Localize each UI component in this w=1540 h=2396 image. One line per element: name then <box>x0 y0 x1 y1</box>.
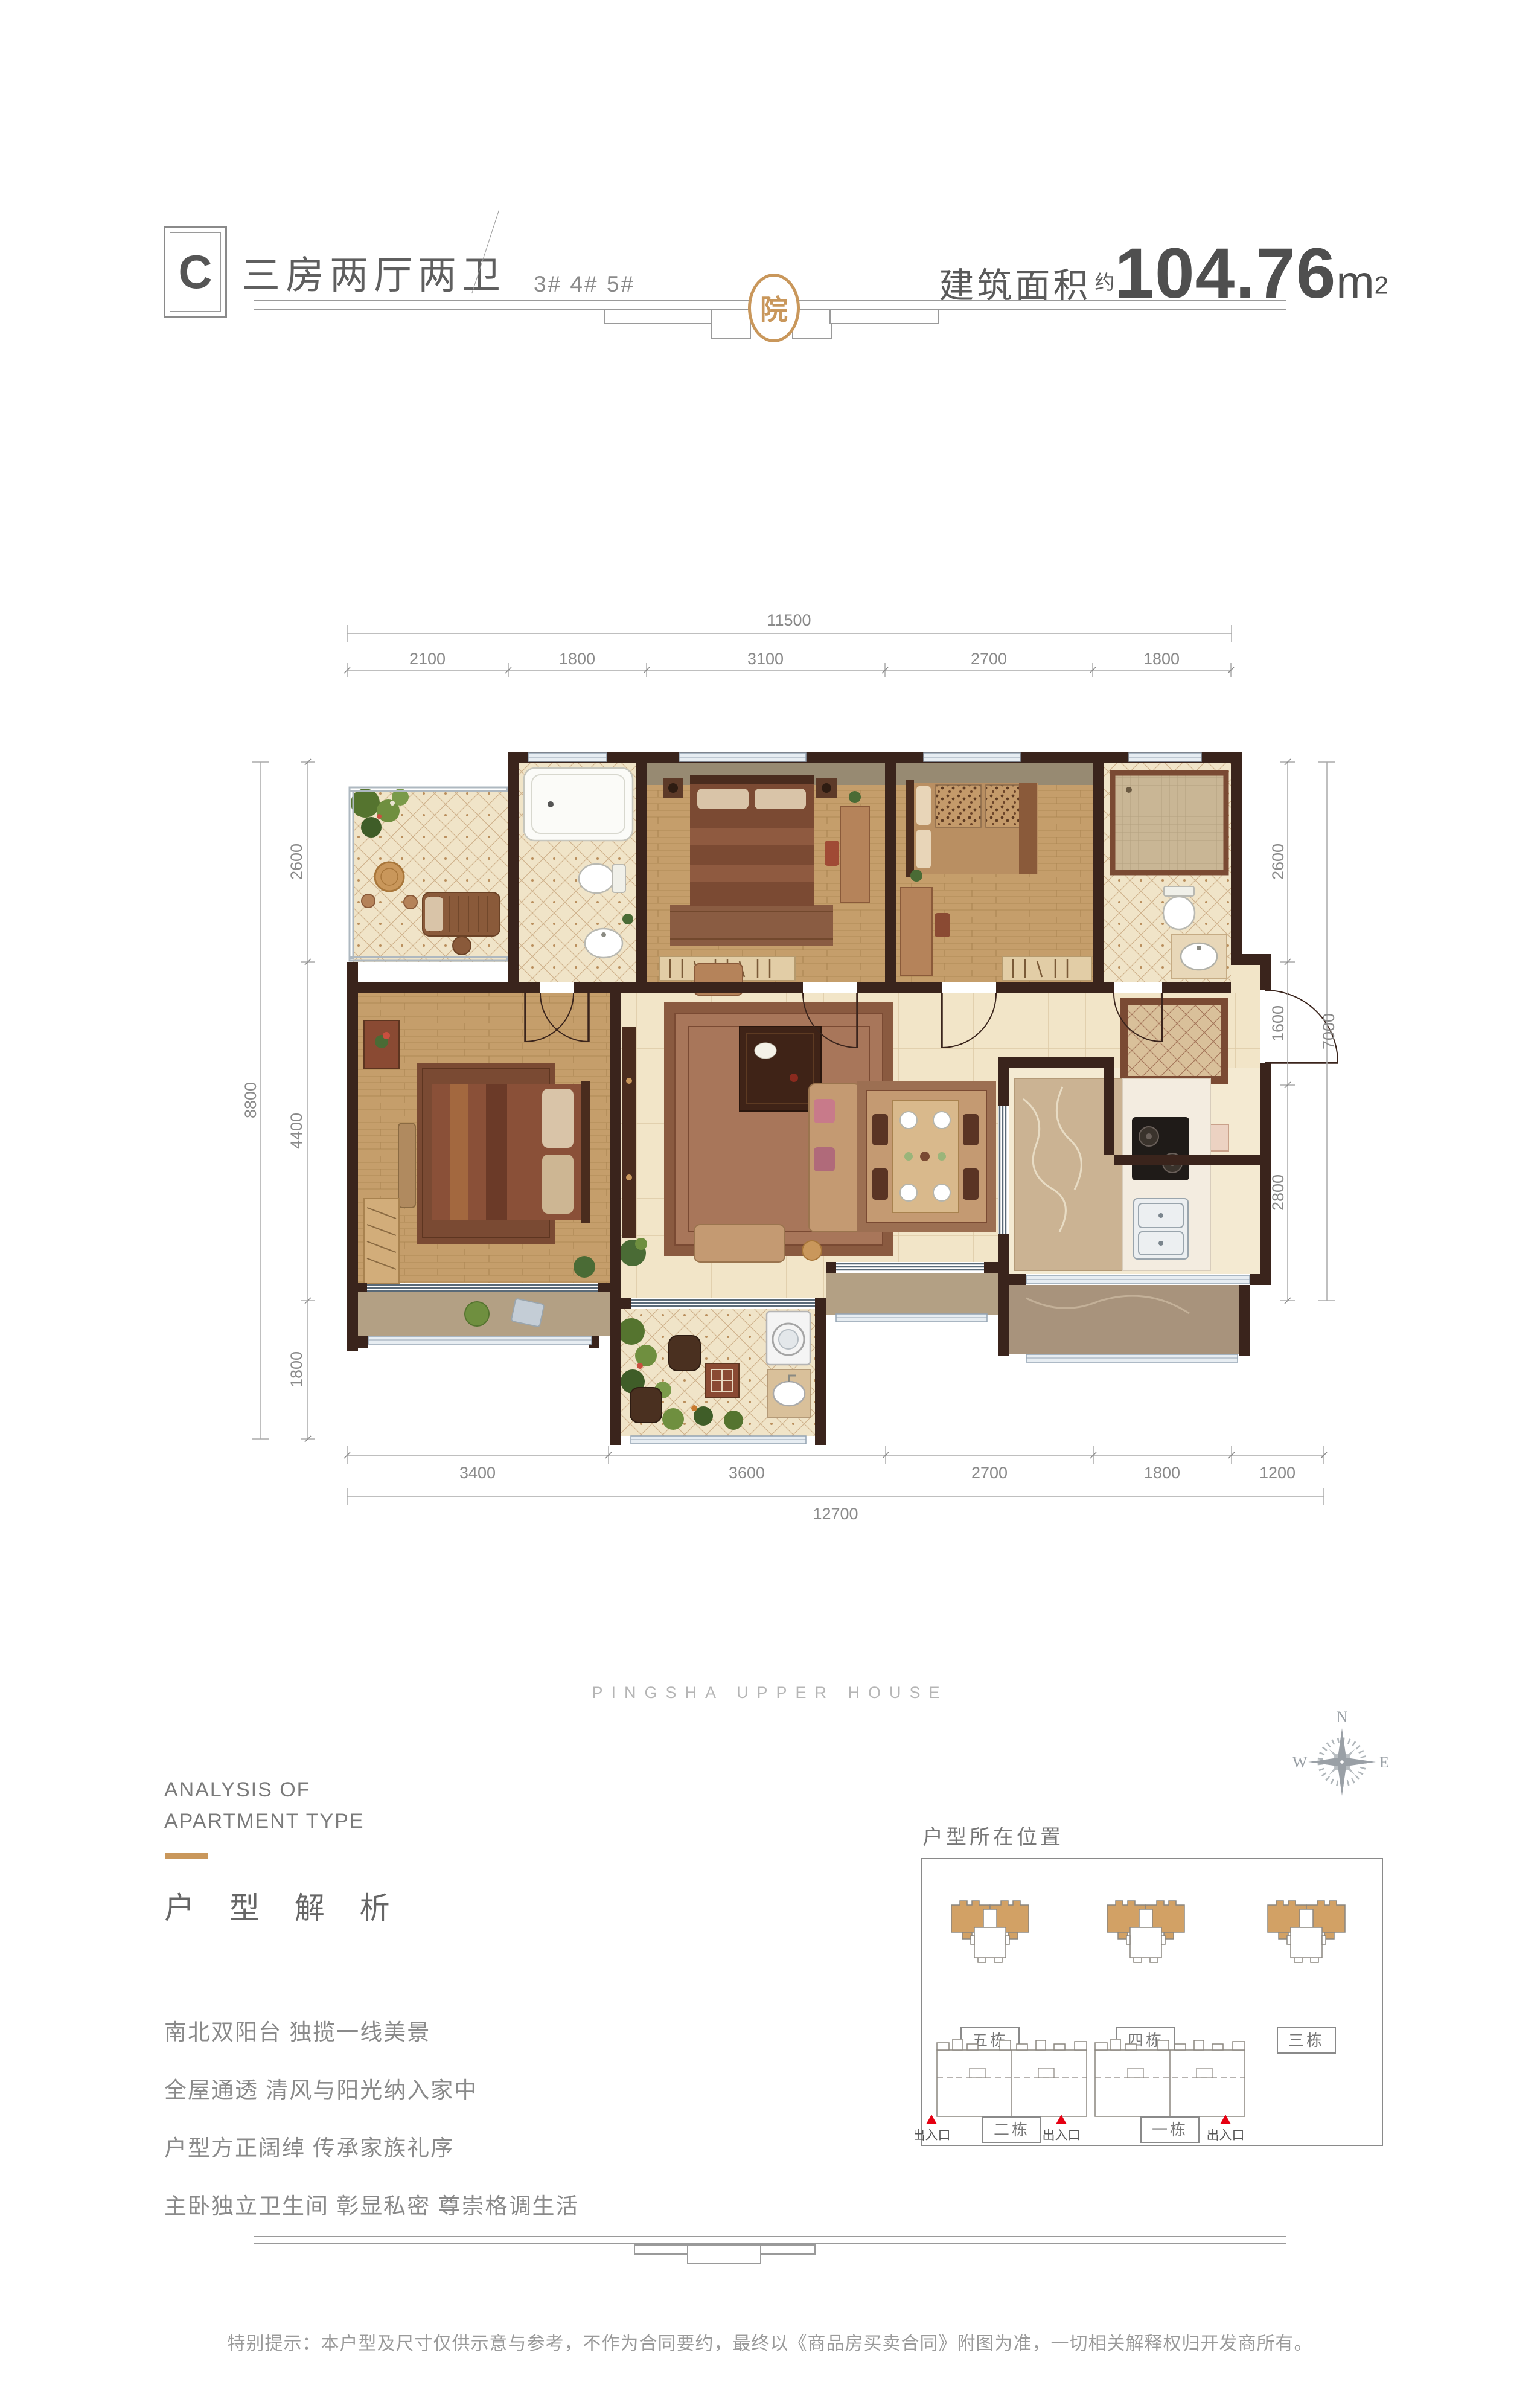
dim-right-seg: 1600 <box>1269 1005 1287 1042</box>
gold-accent-bar <box>165 1853 208 1859</box>
building-numbers: 3# 4# 5# <box>534 272 635 297</box>
analysis-chinese-title: 户 型 解 析 <box>164 1884 403 1927</box>
area-value: 104.76 <box>1114 234 1336 313</box>
dim-bottom-seg: 2700 <box>971 1464 1008 1482</box>
floor-plan-drawing: 11500 2100 1800 3100 2700 1800 3400 3600… <box>229 598 1364 1531</box>
dim-top-seg: 2700 <box>971 650 1007 668</box>
location-map-title: 户型所在位置 <box>922 1826 1064 1849</box>
divider-step <box>829 309 939 324</box>
brand-seal-icon: 院 <box>748 274 800 342</box>
type-code: C <box>170 232 221 312</box>
dining-room-furniture <box>857 1081 996 1232</box>
entrance-label: 出入口 <box>915 2129 951 2142</box>
dim-bottom-seg: 3600 <box>729 1464 765 1482</box>
dim-top-seg: 3100 <box>747 650 784 668</box>
divider-step <box>759 2244 816 2255</box>
dim-bottom-total: 12700 <box>813 1505 858 1523</box>
disclaimer-text: 特别提示：本户型及尺寸仅供示意与参考，不作为合同要约，最终以《商品房买卖合同》附… <box>0 2328 1540 2355</box>
building-label: 三栋 <box>1288 2031 1324 2049</box>
dim-right-seg: 2800 <box>1269 1174 1287 1211</box>
analysis-english-title: ANALYSIS OF APARTMENT TYPE <box>164 1774 365 1837</box>
location-map: 户型所在位置 五栋 四栋 三栋 二栋 一栋 出 <box>915 1818 1398 2162</box>
dim-left-seg: 2600 <box>287 844 305 880</box>
area-unit: m <box>1336 257 1374 308</box>
dim-bottom-seg: 1800 <box>1144 1464 1180 1482</box>
type-name: 三房两厅两卫 <box>241 245 506 300</box>
area-info: 建筑面积约104.76m2 <box>930 232 1388 315</box>
selling-point: 主卧独立卫生间 彰显私密 尊崇格调生活 <box>164 2177 580 2235</box>
dim-bottom-seg: 1200 <box>1259 1464 1296 1482</box>
divider-step <box>687 2244 761 2264</box>
dim-left-seg: 4400 <box>287 1113 305 1149</box>
dim-left-total: 8800 <box>241 1082 260 1118</box>
dim-top-seg: 2100 <box>409 650 446 668</box>
entrance-label: 出入口 <box>1207 2129 1245 2142</box>
compass-icon: N W E <box>1288 1705 1396 1819</box>
dim-top-seg: 1800 <box>1143 650 1180 668</box>
dim-bottom-seg: 3400 <box>459 1464 496 1482</box>
dim-top-seg: 1800 <box>559 650 595 668</box>
compass-east-label: E <box>1379 1754 1389 1771</box>
divider-step <box>711 309 751 339</box>
entrance-label: 出入口 <box>1043 2129 1081 2142</box>
selling-point: 南北双阳台 独揽一线美景 <box>164 2004 580 2061</box>
analysis-english-line2: APARTMENT TYPE <box>164 1805 365 1837</box>
divider-step <box>604 309 714 324</box>
area-approx: 约 <box>1094 271 1114 293</box>
selling-point: 全屋通透 清风与阳光纳入家中 <box>164 2061 580 2119</box>
dim-right-seg: 2600 <box>1269 844 1287 880</box>
selling-points: 南北双阳台 独揽一线美景 全屋通透 清风与阳光纳入家中 户型方正阔绰 传承家族礼… <box>164 2004 580 2235</box>
divider-step <box>634 2244 689 2255</box>
type-code-box: C <box>164 226 227 318</box>
building-label: 二栋 <box>994 2121 1030 2139</box>
divider-line <box>254 2236 1286 2237</box>
dim-top-total: 11500 <box>767 611 811 629</box>
compass-north-label: N <box>1337 1708 1348 1726</box>
selling-point: 户型方正阔绰 传承家族礼序 <box>164 2119 580 2177</box>
dim-left-seg: 1800 <box>287 1351 305 1388</box>
compass-west-label: W <box>1292 1754 1308 1771</box>
analysis-english-line1: ANALYSIS OF <box>164 1774 365 1805</box>
dim-right-total: 7000 <box>1320 1013 1338 1049</box>
building-label: 一栋 <box>1152 2121 1188 2139</box>
area-unit-exponent: 2 <box>1375 271 1388 299</box>
floor-plan-page: C 三房两厅两卫 3# 4# 5# 建筑面积约104.76m2 院 <box>0 0 1540 2396</box>
project-watermark: PINGSHA UPPER HOUSE <box>0 1683 1540 1702</box>
